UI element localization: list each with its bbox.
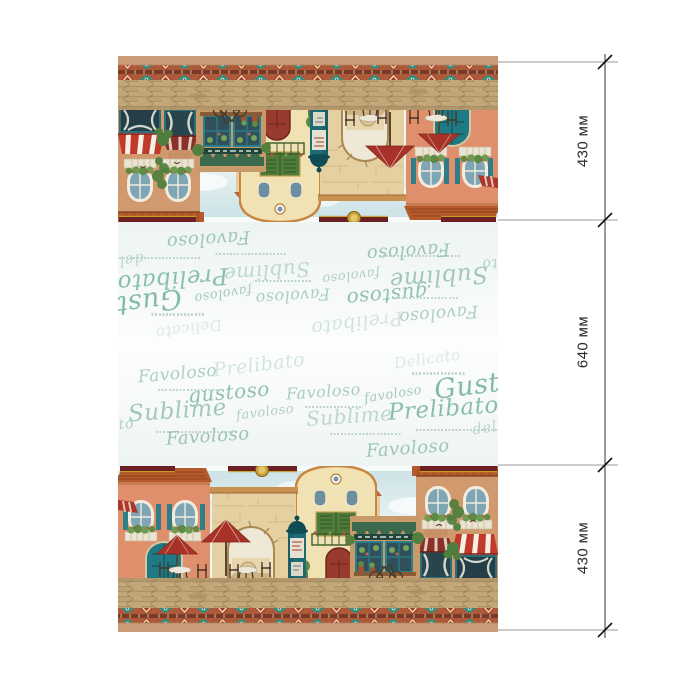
right-building: [118, 108, 204, 222]
dimension-label-middle: 640 мм: [575, 316, 592, 368]
script-word-caption: [214, 253, 286, 255]
tick-marks: [598, 55, 612, 637]
right-building: [412, 466, 498, 580]
script-word-caption: [330, 433, 402, 435]
script-word: Favoloso: [166, 227, 251, 251]
script-word: Favoloso: [286, 381, 362, 402]
street-scene-artwork: [118, 56, 498, 222]
script-word: ato: [481, 255, 498, 271]
script-word: Favoloso: [366, 239, 451, 263]
ornamental-border: [118, 65, 498, 80]
script-words-section: FavolosoPrelibatoDelicatogustosoFavoloso…: [118, 222, 498, 466]
cobblestone-street: [118, 578, 498, 610]
script-word: Favoloso: [365, 437, 450, 461]
street-scene-bottom: [118, 466, 498, 632]
script-word: Prelibato: [212, 350, 306, 380]
script-word: Sublime: [223, 259, 311, 285]
script-word: Sublime: [305, 403, 393, 429]
script-word: Delicato: [393, 347, 461, 371]
script-word: ato: [118, 417, 135, 433]
flower-shop: [192, 108, 271, 172]
script-words-inverted: FavolosoPrelibatoDelicatogustosoFavoloso…: [118, 222, 498, 344]
dimension-label-top: 430 мм: [575, 115, 592, 167]
tan-edge-band: [118, 623, 498, 632]
dimension-label-bottom: 430 мм: [575, 522, 592, 574]
cobblestone-street: [118, 78, 498, 110]
tan-edge-band: [118, 56, 498, 65]
flower-shop: [345, 516, 424, 580]
script-word: Delicato: [154, 316, 222, 340]
script-word: favoloso: [235, 403, 294, 423]
script-word: favoloso: [321, 266, 380, 286]
street-scene-top-inverted: [118, 56, 498, 222]
ornamental-border: [118, 608, 498, 623]
script-word: Favoloso: [255, 285, 331, 306]
fabric-panel: FavolosoPrelibatoDelicatogustosoFavoloso…: [118, 56, 498, 632]
script-word: Sublime: [388, 262, 488, 292]
street-scene-artwork: [118, 466, 498, 632]
script-word: Sublime: [127, 397, 227, 427]
extension-lines: [498, 62, 618, 630]
script-word: Prelibato: [310, 307, 404, 337]
product-image: FavolosoPrelibatoDelicatogustosoFavoloso…: [0, 0, 700, 700]
script-words-upright: FavolosoPrelibatoDelicatogustosoFavoloso…: [118, 344, 498, 466]
script-word: Favoloso: [165, 425, 250, 449]
